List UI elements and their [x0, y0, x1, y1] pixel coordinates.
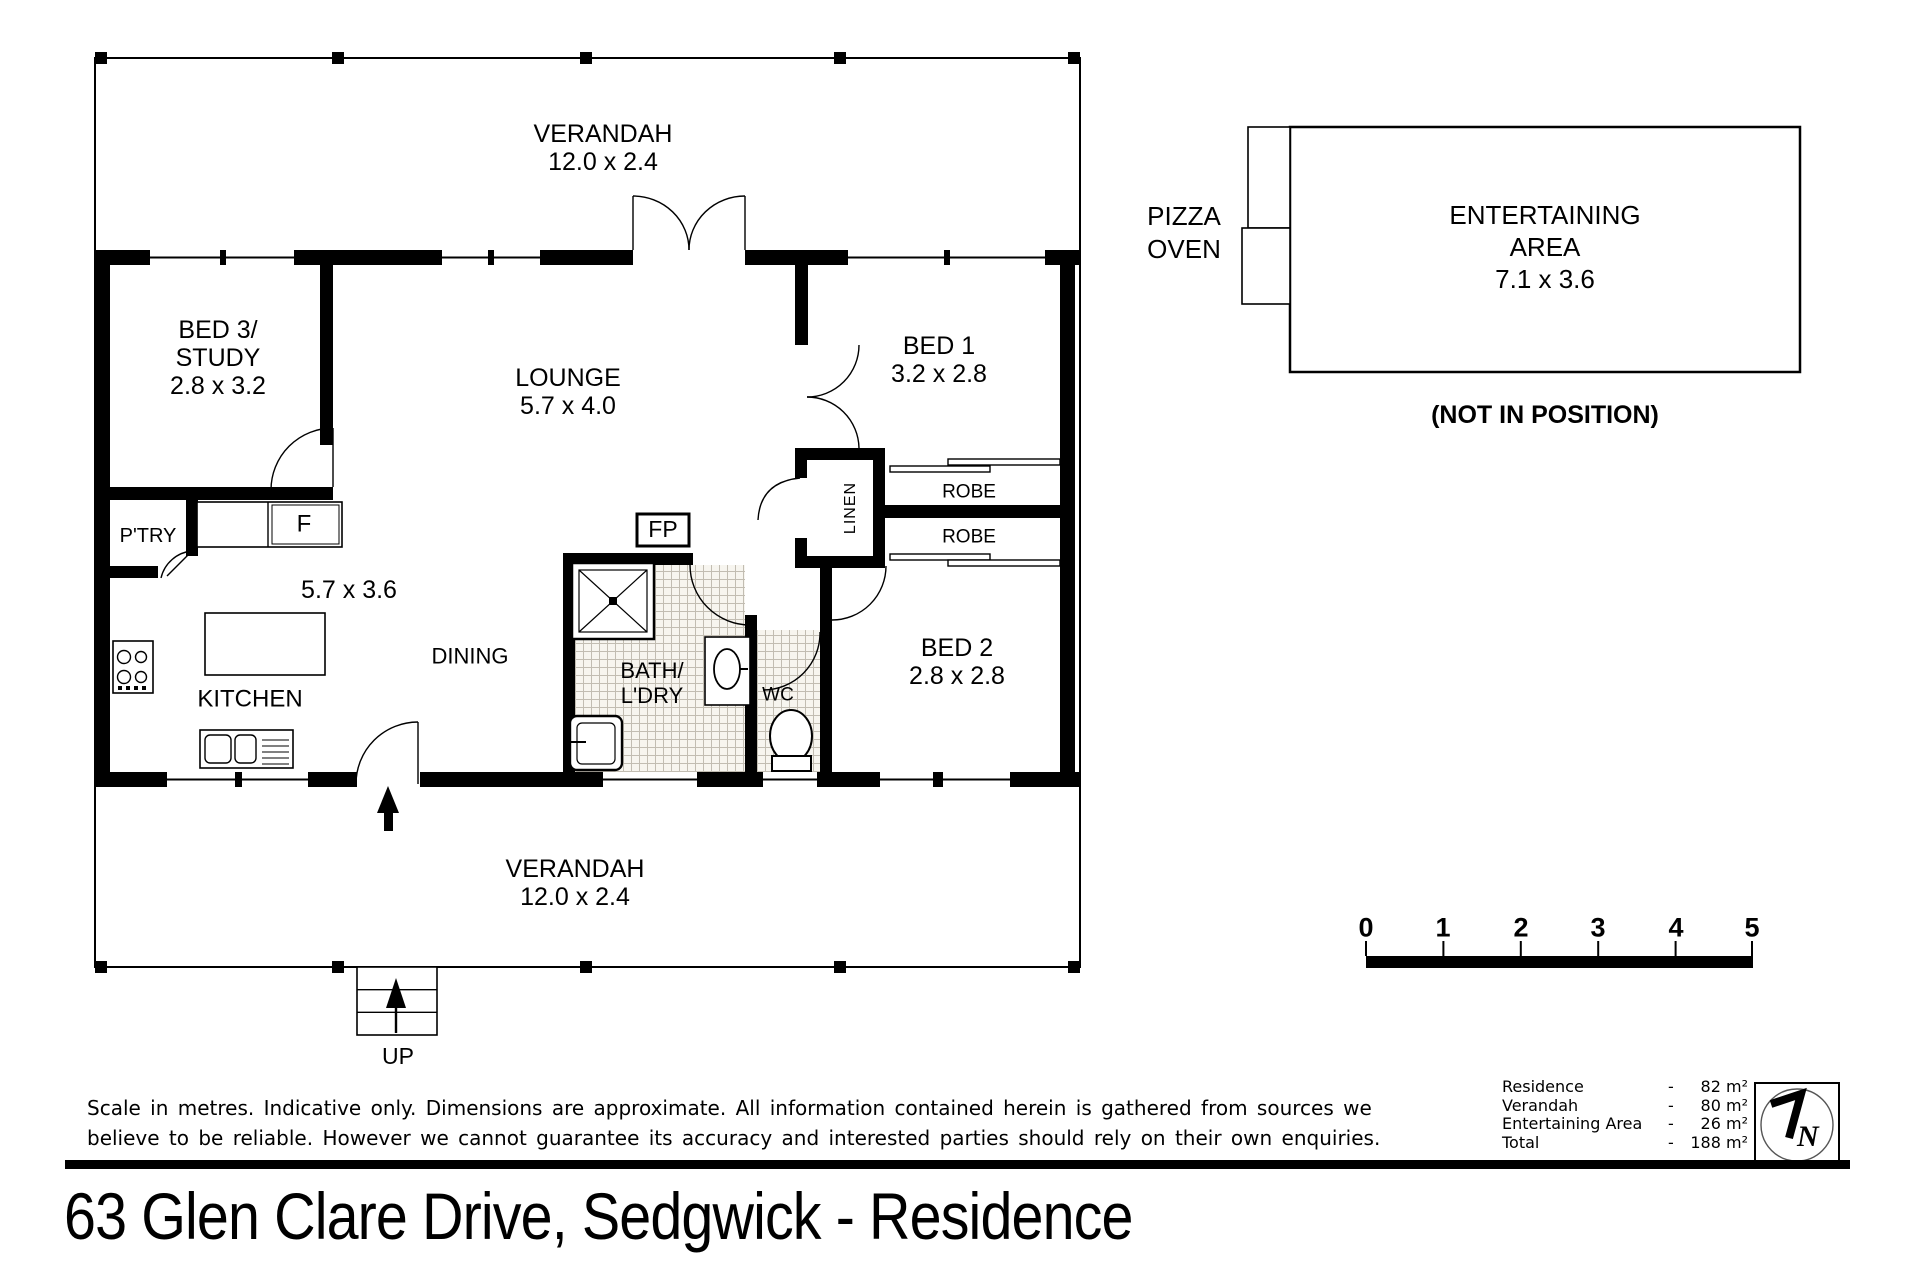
label-robe1: ROBE [942, 481, 996, 502]
floorplan-page: N VERANDAH12.0 x 2.4 BED 3/STUDY2.8 x 3.… [0, 0, 1920, 1280]
entry-stairs [357, 967, 437, 1035]
label-fireplace: FP [648, 517, 677, 543]
label-lounge: LOUNGE5.7 x 4.0 [515, 364, 621, 420]
scale-tick-4: 4 [1668, 913, 1683, 944]
label-entertaining-area: ENTERTAININGAREA7.1 x 3.6 [1449, 199, 1640, 295]
scale-bar [1366, 941, 1753, 968]
laundry-tub [570, 716, 622, 770]
label-bath-ldry: BATH/L'DRY [620, 658, 683, 708]
label-bed3-study: BED 3/STUDY2.8 x 3.2 [170, 316, 266, 400]
entry-arrow-icon [377, 786, 399, 831]
label-kitchen-dims: 5.7 x 3.6 [301, 576, 397, 604]
label-bed1: BED 13.2 x 2.8 [891, 332, 987, 388]
vanity-basin [705, 637, 750, 705]
fixtures [113, 502, 812, 1035]
label-pizza-oven: PIZZAOVEN [1147, 200, 1221, 266]
toilet [770, 710, 812, 771]
label-not-in-position: (NOT IN POSITION) [1431, 401, 1659, 429]
label-robe2: ROBE [942, 526, 996, 547]
svg-text:N: N [1796, 1120, 1820, 1153]
disclaimer-line-1: Scale in metres. Indicative only. Dimens… [87, 1096, 1372, 1120]
table-row: Entertaining Area - 26 m² [1502, 1115, 1748, 1134]
table-row: Verandah - 80 m² [1502, 1097, 1748, 1116]
label-wc: WC [762, 684, 794, 705]
disclaimer-line-2: believe to be reliable. However we canno… [87, 1126, 1380, 1150]
kitchen-counter-fridge [197, 502, 342, 547]
island-bench [205, 613, 325, 675]
label-up: UP [382, 1044, 414, 1070]
cooktop [113, 641, 153, 693]
label-verandah-top: VERANDAH12.0 x 2.4 [534, 120, 673, 176]
divider-rule [65, 1160, 1850, 1169]
table-row: Total - 188 m² [1502, 1134, 1748, 1153]
pizza-oven-box-bottom [1242, 228, 1290, 304]
scale-tick-0: 0 [1358, 913, 1373, 944]
area-summary-table: Residence - 82 m² Verandah - 80 m² Enter… [1502, 1078, 1748, 1152]
scale-tick-1: 1 [1435, 913, 1450, 944]
scale-tick-2: 2 [1513, 913, 1528, 944]
label-fridge: F [297, 512, 312, 539]
label-dining: DINING [432, 645, 509, 670]
table-row: Residence - 82 m² [1502, 1078, 1748, 1097]
label-bed2: BED 22.8 x 2.8 [909, 634, 1005, 690]
label-linen: LINEN [842, 482, 860, 534]
page-title: 63 Glen Clare Drive, Sedgwick - Residenc… [64, 1178, 1133, 1254]
pizza-oven-box-top [1248, 127, 1290, 228]
label-verandah-bottom: VERANDAH12.0 x 2.4 [506, 855, 645, 911]
kitchen-sink [200, 730, 293, 768]
compass-logo-icon: N [1755, 1083, 1839, 1167]
scale-tick-5: 5 [1744, 913, 1759, 944]
shower [572, 563, 654, 639]
label-pantry: P'TRY [120, 525, 177, 547]
scale-tick-3: 3 [1590, 913, 1605, 944]
label-kitchen: KITCHEN [197, 687, 302, 714]
